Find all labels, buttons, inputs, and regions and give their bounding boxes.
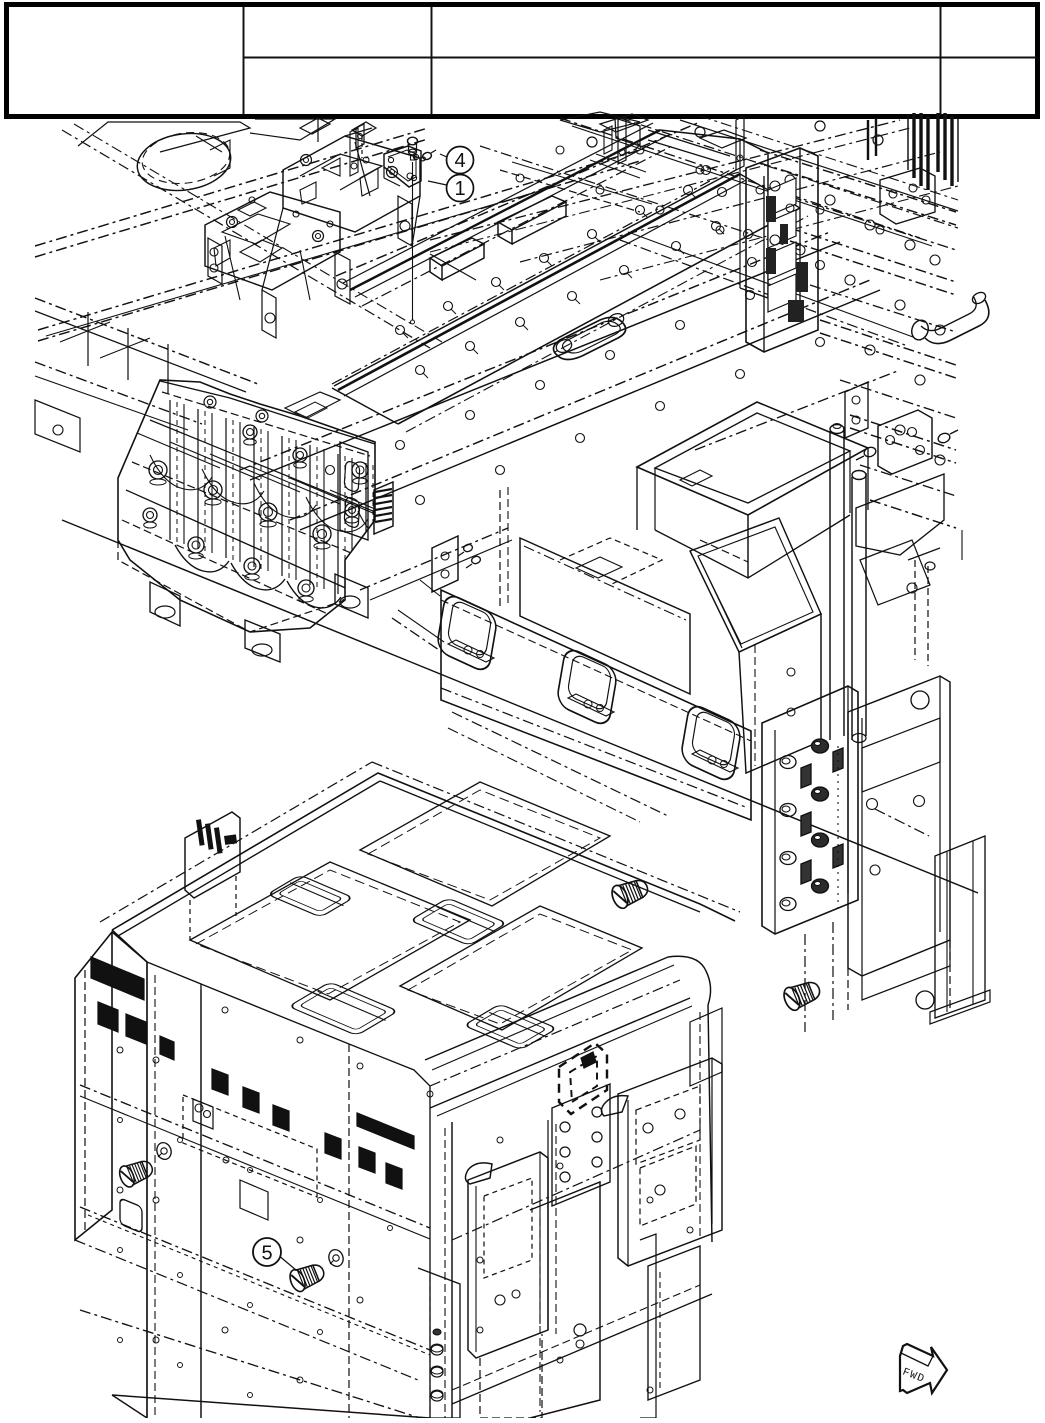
svg-text:5: 5 [261,1243,272,1265]
svg-text:4: 4 [454,150,465,172]
svg-text:1: 1 [454,178,465,200]
